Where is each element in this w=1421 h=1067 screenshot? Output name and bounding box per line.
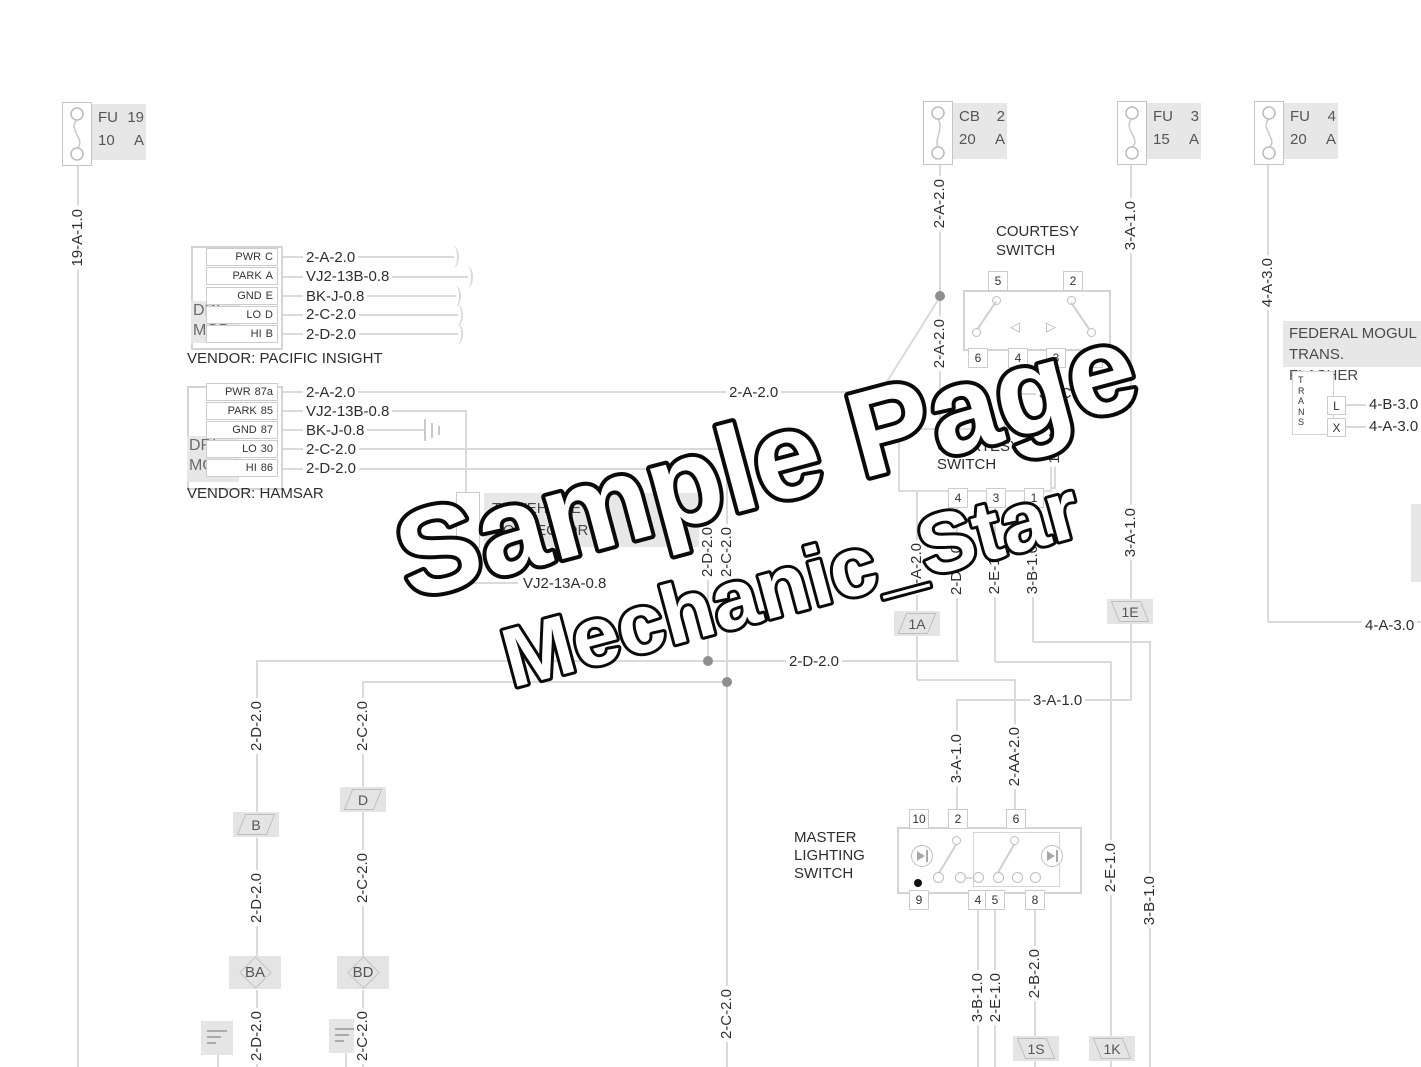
connector-b: B [233, 812, 279, 837]
pin-number: 3 [993, 491, 1000, 505]
fuse-icon [1254, 101, 1284, 165]
connector-bd: BD [337, 956, 389, 989]
connector-id: D [358, 792, 368, 808]
breaker-icon [923, 101, 953, 165]
fuse-fu3: FU3 15A [1117, 101, 1201, 161]
master-pin-2: 2 [948, 809, 968, 829]
fuse-id: FU [98, 109, 118, 126]
courtesy-switch-2-title: COURTESY SWITCH [934, 438, 1023, 474]
pin-number: 10 [912, 812, 925, 826]
flasher-body-label: TRANS [1298, 375, 1307, 428]
wire-label: 3-B-1.0 [1024, 542, 1041, 597]
connector-id: 1S [1027, 1041, 1044, 1057]
courtesy-switch-1 [963, 290, 1111, 351]
wire-label: 3-B-1.0 [1141, 873, 1158, 928]
wire-label: 2-A-2.0 [303, 384, 358, 401]
sw1-pin-4: 4 [1008, 348, 1028, 368]
title-line: SWITCH [794, 865, 865, 883]
pin-terminal: 86 [261, 462, 273, 474]
pin-name: GND [237, 290, 261, 302]
wire-label: 2-C-2.0 [303, 306, 359, 323]
pin-name: LO [246, 309, 261, 321]
drl2-pin-park: PARK85 [206, 402, 278, 420]
vendor-label: VENDOR: HAMSAR [184, 485, 327, 502]
wire-label: 2-E-1.0 [1102, 840, 1119, 895]
pin-number: 1 [1031, 491, 1038, 505]
wire-label: VJ2-13A-0.8 [520, 575, 609, 592]
vendor-label: VENDOR: PACIFIC INSIGHT [184, 350, 386, 367]
drl2-pin-gnd: GND87 [206, 421, 278, 439]
wire-label: 2-C-2.0 [354, 850, 371, 906]
pin-number: 2 [955, 812, 962, 826]
title-line: LIGHTING [794, 847, 865, 865]
wire-14bk [1021, 417, 1055, 419]
sw2-pin-3: 3 [986, 488, 1006, 508]
wire-3a [1130, 624, 1132, 700]
wire-2aa-run [917, 679, 1015, 681]
wire-label: BK-J-0.8 [303, 288, 367, 305]
wire-19a [77, 163, 79, 1067]
pin-name: PWR [235, 251, 261, 263]
wire-label: VJ2-13B-0.8 [303, 403, 392, 420]
fuse-num: 2 [997, 108, 1005, 125]
connector-id: B [251, 817, 260, 833]
fuse-id: FU [1153, 108, 1173, 125]
label-line: CONNECTOR [492, 520, 702, 542]
junction-dot-black [914, 879, 922, 887]
connector-id: BD [353, 964, 374, 981]
courtesy-switch-1-title: COURTESY SWITCH [993, 222, 1082, 260]
pin-name: HI [246, 462, 257, 474]
pin-number: 5 [992, 893, 999, 907]
connector-1e: 1E [1107, 599, 1153, 624]
pin-terminal: 87a [255, 386, 273, 398]
master-pin-6: 6 [1006, 809, 1026, 829]
vehicle-connector-box [456, 492, 480, 548]
drl1-pin-hi: HIB [206, 325, 278, 343]
wire-label: 2-E-1.0 [987, 970, 1004, 1025]
junction-dot [703, 656, 713, 666]
pin-number: 2 [1011, 413, 1018, 427]
junction-dot [935, 291, 945, 301]
lamp-bar [926, 850, 928, 862]
sw1-pin-6: 6 [968, 348, 988, 368]
drl1-pin-park: PARKA [206, 267, 278, 285]
wire-label: 2-D-2.0 [303, 460, 359, 477]
master-switch-title: MASTER LIGHTING SWITCH [791, 829, 868, 883]
fuse-unit: A [134, 132, 144, 149]
title-line: COURTESY [996, 222, 1079, 241]
wire-label: 3-A-1.0 [1122, 198, 1139, 253]
sw2-pin-1: 1 [1024, 488, 1044, 508]
ground-icon [424, 419, 426, 441]
wire-label: 2-A-2.0 [931, 316, 948, 371]
ground-icon [201, 1021, 233, 1055]
pin-terminal: B [266, 328, 273, 340]
lamp-triangle [1047, 851, 1055, 861]
connector-1a: 1A [894, 611, 940, 636]
wire [1012, 393, 1014, 410]
pin-number: 9 [916, 893, 923, 907]
wire-2c-run [363, 681, 727, 683]
master-pin-5: 5 [985, 890, 1005, 910]
fuse-amp: 20 [959, 131, 976, 148]
connector-id: 1E [1121, 604, 1138, 620]
wire-label: 4-A-3.0 [1366, 418, 1421, 435]
fuse-num: 3 [1191, 108, 1199, 125]
wire-label: 2-C-2.0 [718, 986, 735, 1042]
fuse-amp: 15 [1153, 131, 1170, 148]
wire-label: BK-J-0.8 [303, 422, 367, 439]
partial-component [1411, 504, 1421, 582]
connector-id: 1A [908, 616, 925, 632]
drl1-pin-lo: LOD [206, 306, 278, 324]
title-line: SWITCH [937, 456, 1020, 474]
fuse-unit: A [1189, 131, 1199, 148]
contact-link [964, 877, 975, 879]
wire-2a-long [278, 391, 880, 393]
pin-number: 4 [1015, 351, 1022, 365]
wire-label: 19-A-1.0 [69, 206, 86, 270]
wire-label: 2-E-1.0 [986, 542, 1003, 597]
wire-label: 4-B-3.0 [1366, 396, 1421, 413]
wire-label: 3-A-1.0 [1030, 692, 1085, 709]
fuse-fu4: FU4 20A [1254, 101, 1338, 161]
connector-id: BA [245, 964, 265, 981]
sw1-pin-3: 3 [1046, 348, 1066, 368]
fuse-num: 19 [127, 109, 144, 126]
pin-terminal: A [266, 270, 273, 282]
wire-3b-turn [1033, 641, 1150, 643]
pin-name: PWR [225, 386, 251, 398]
title-line: COURTESY [937, 438, 1020, 456]
wire-label: 2-A-2.0 [303, 249, 358, 266]
pin-number: 6 [975, 351, 982, 365]
switch-contact [993, 872, 1004, 883]
drl1-pin-gnd: GNDE [206, 287, 278, 305]
ground-icon [438, 426, 440, 435]
title-line: SWITCH [996, 241, 1079, 260]
pin-terminal: 87 [261, 424, 273, 436]
wire-label: 2-C-2.0 [303, 441, 359, 458]
wire-label: 2-D-2.0 [948, 542, 965, 598]
pin-letter: X [1332, 421, 1340, 435]
wire-label: 4-A-3.0 [1259, 255, 1276, 310]
wire-4a [1267, 163, 1269, 622]
pin-number: 2 [1070, 274, 1077, 288]
wire-hook [447, 246, 459, 268]
switch-contact [952, 836, 961, 845]
lamp-bar [1056, 850, 1058, 862]
wire-3b-right [1149, 641, 1151, 1067]
pin-terminal: C [265, 251, 273, 263]
pin-name: PARK [228, 405, 257, 417]
sw1-pin-2: 2 [1063, 271, 1083, 291]
fuse-num: 4 [1328, 108, 1336, 125]
fuse-unit: A [1326, 131, 1336, 148]
triangle-left-icon: ◁ [1010, 320, 1020, 333]
title-line: FEDERAL MOGUL [1289, 323, 1417, 344]
flasher-pin-l: L [1327, 396, 1346, 415]
switch-contact [1012, 872, 1023, 883]
sw2-pin-4: 4 [948, 488, 968, 508]
ground-icon [431, 423, 433, 438]
wire-label: 2-C-2.0 [354, 698, 371, 754]
flasher-pin-x: X [1327, 418, 1346, 437]
wire-label: 35-C-0.8 [1036, 385, 1100, 402]
flasher-title: FEDERAL MOGUL TRANS. FLASHER [1283, 321, 1421, 367]
switch-contact [1030, 872, 1041, 883]
drl2-pin-lo: LO30 [206, 440, 278, 458]
switch-contact [972, 328, 981, 337]
pin-terminal: D [265, 309, 273, 321]
lamp-triangle [917, 851, 925, 861]
pin-letter: L [1333, 399, 1340, 413]
wire-hook [461, 266, 473, 288]
fuse-amp: 20 [1290, 131, 1307, 148]
master-pin-9: 9 [909, 890, 929, 910]
pin-number: 4 [955, 491, 962, 505]
wire [916, 636, 918, 680]
pin-name: LO [242, 443, 257, 455]
sw2-pin-2: 2 [1004, 410, 1024, 430]
wire-2e-turn [995, 661, 1111, 663]
connector-d: D [340, 787, 386, 812]
connector-id: 1K [1103, 1041, 1120, 1057]
pin-terminal: 85 [261, 405, 273, 417]
label-line: TO VEHICLE [492, 498, 702, 520]
wire-label: 2-A-2.0 [908, 540, 925, 595]
drl2-pin-pwr: PWR87a [206, 383, 278, 401]
sw1-pin-5: 5 [988, 271, 1008, 291]
wire-label: VJ2-13B-0.8 [303, 268, 392, 285]
wire [466, 582, 518, 584]
wire [217, 1055, 219, 1067]
wire-label: 3-A-1.0 [1122, 505, 1139, 560]
pin-name: PARK [233, 270, 262, 282]
pin-number: 4 [975, 893, 982, 907]
triangle-right-icon: ▷ [1046, 320, 1056, 333]
wire-label: 2-C-2.0 [354, 1008, 371, 1064]
junction-dot [722, 677, 732, 687]
wiring-diagram: FU19 10A CB2 20A FU3 15A FU4 20A DRL MOD… [0, 0, 1421, 1067]
master-pin-8: 8 [1025, 890, 1045, 910]
sw1-pin-1: 1 [1083, 348, 1103, 368]
connector-ba: BA [229, 956, 281, 989]
drl2-pin-hi: HI86 [206, 459, 278, 477]
fuse-fu19: FU19 10A [62, 102, 146, 162]
wire-label: 2-AA-2.0 [1006, 724, 1023, 789]
pin-terminal: E [266, 290, 273, 302]
title-line: MASTER [794, 829, 865, 847]
connector-1s: 1S [1013, 1036, 1059, 1061]
wire-2d-run [257, 660, 959, 662]
wire-label: 3-A-1.0 [948, 731, 965, 786]
fuse-unit: A [995, 131, 1005, 148]
pin-terminal: 30 [261, 443, 273, 455]
pin-number: 5 [995, 274, 1002, 288]
pin-name: HI [251, 328, 262, 340]
switch-contact [933, 872, 944, 883]
breaker-cb2: CB2 20A [923, 101, 1007, 161]
pin-number: 1 [1090, 351, 1097, 365]
to-vehicle-connector-label: TO VEHICLE CONNECTOR [484, 493, 710, 547]
wire-label: 2-D-2.0 [786, 653, 842, 670]
fuse-id: FU [1290, 108, 1310, 125]
fuse-id: CB [959, 108, 980, 125]
switch-contact [1010, 836, 1019, 845]
wire [345, 1053, 347, 1067]
wire-label: 3-B-1.0 [969, 970, 986, 1025]
switch-contact [1087, 328, 1096, 337]
wire-label: 2-D-2.0 [248, 1008, 265, 1064]
wire-label: 2-A-2.0 [726, 384, 781, 401]
wire-label: 2-D-2.0 [699, 524, 716, 580]
pin-number: 3 [1053, 351, 1060, 365]
connector-1k: 1K [1089, 1036, 1135, 1061]
wire-label: 2-B-2.0 [1026, 946, 1043, 1001]
pin-name: GND [232, 424, 256, 436]
drl1-pin-pwr: PWRC [206, 248, 278, 266]
wire-label: 2-D-2.0 [303, 326, 359, 343]
pin-number: 8 [1032, 893, 1039, 907]
wire-label: 14BK [1046, 424, 1063, 467]
fuse-icon [62, 102, 92, 166]
wire-label: 2-A-2.0 [931, 176, 948, 231]
wire-label: 2-D-2.0 [248, 698, 265, 754]
wire-label: 2-D-2.0 [248, 870, 265, 926]
wire-label: 4-A-3.0 [1362, 617, 1417, 634]
pin-number: 6 [1013, 812, 1020, 826]
fuse-amp: 10 [98, 132, 115, 149]
wire-hook [451, 323, 463, 345]
master-pin-10: 10 [909, 809, 929, 829]
fuse-icon [1117, 101, 1147, 165]
wire-label: 2-C-2.0 [718, 524, 735, 580]
